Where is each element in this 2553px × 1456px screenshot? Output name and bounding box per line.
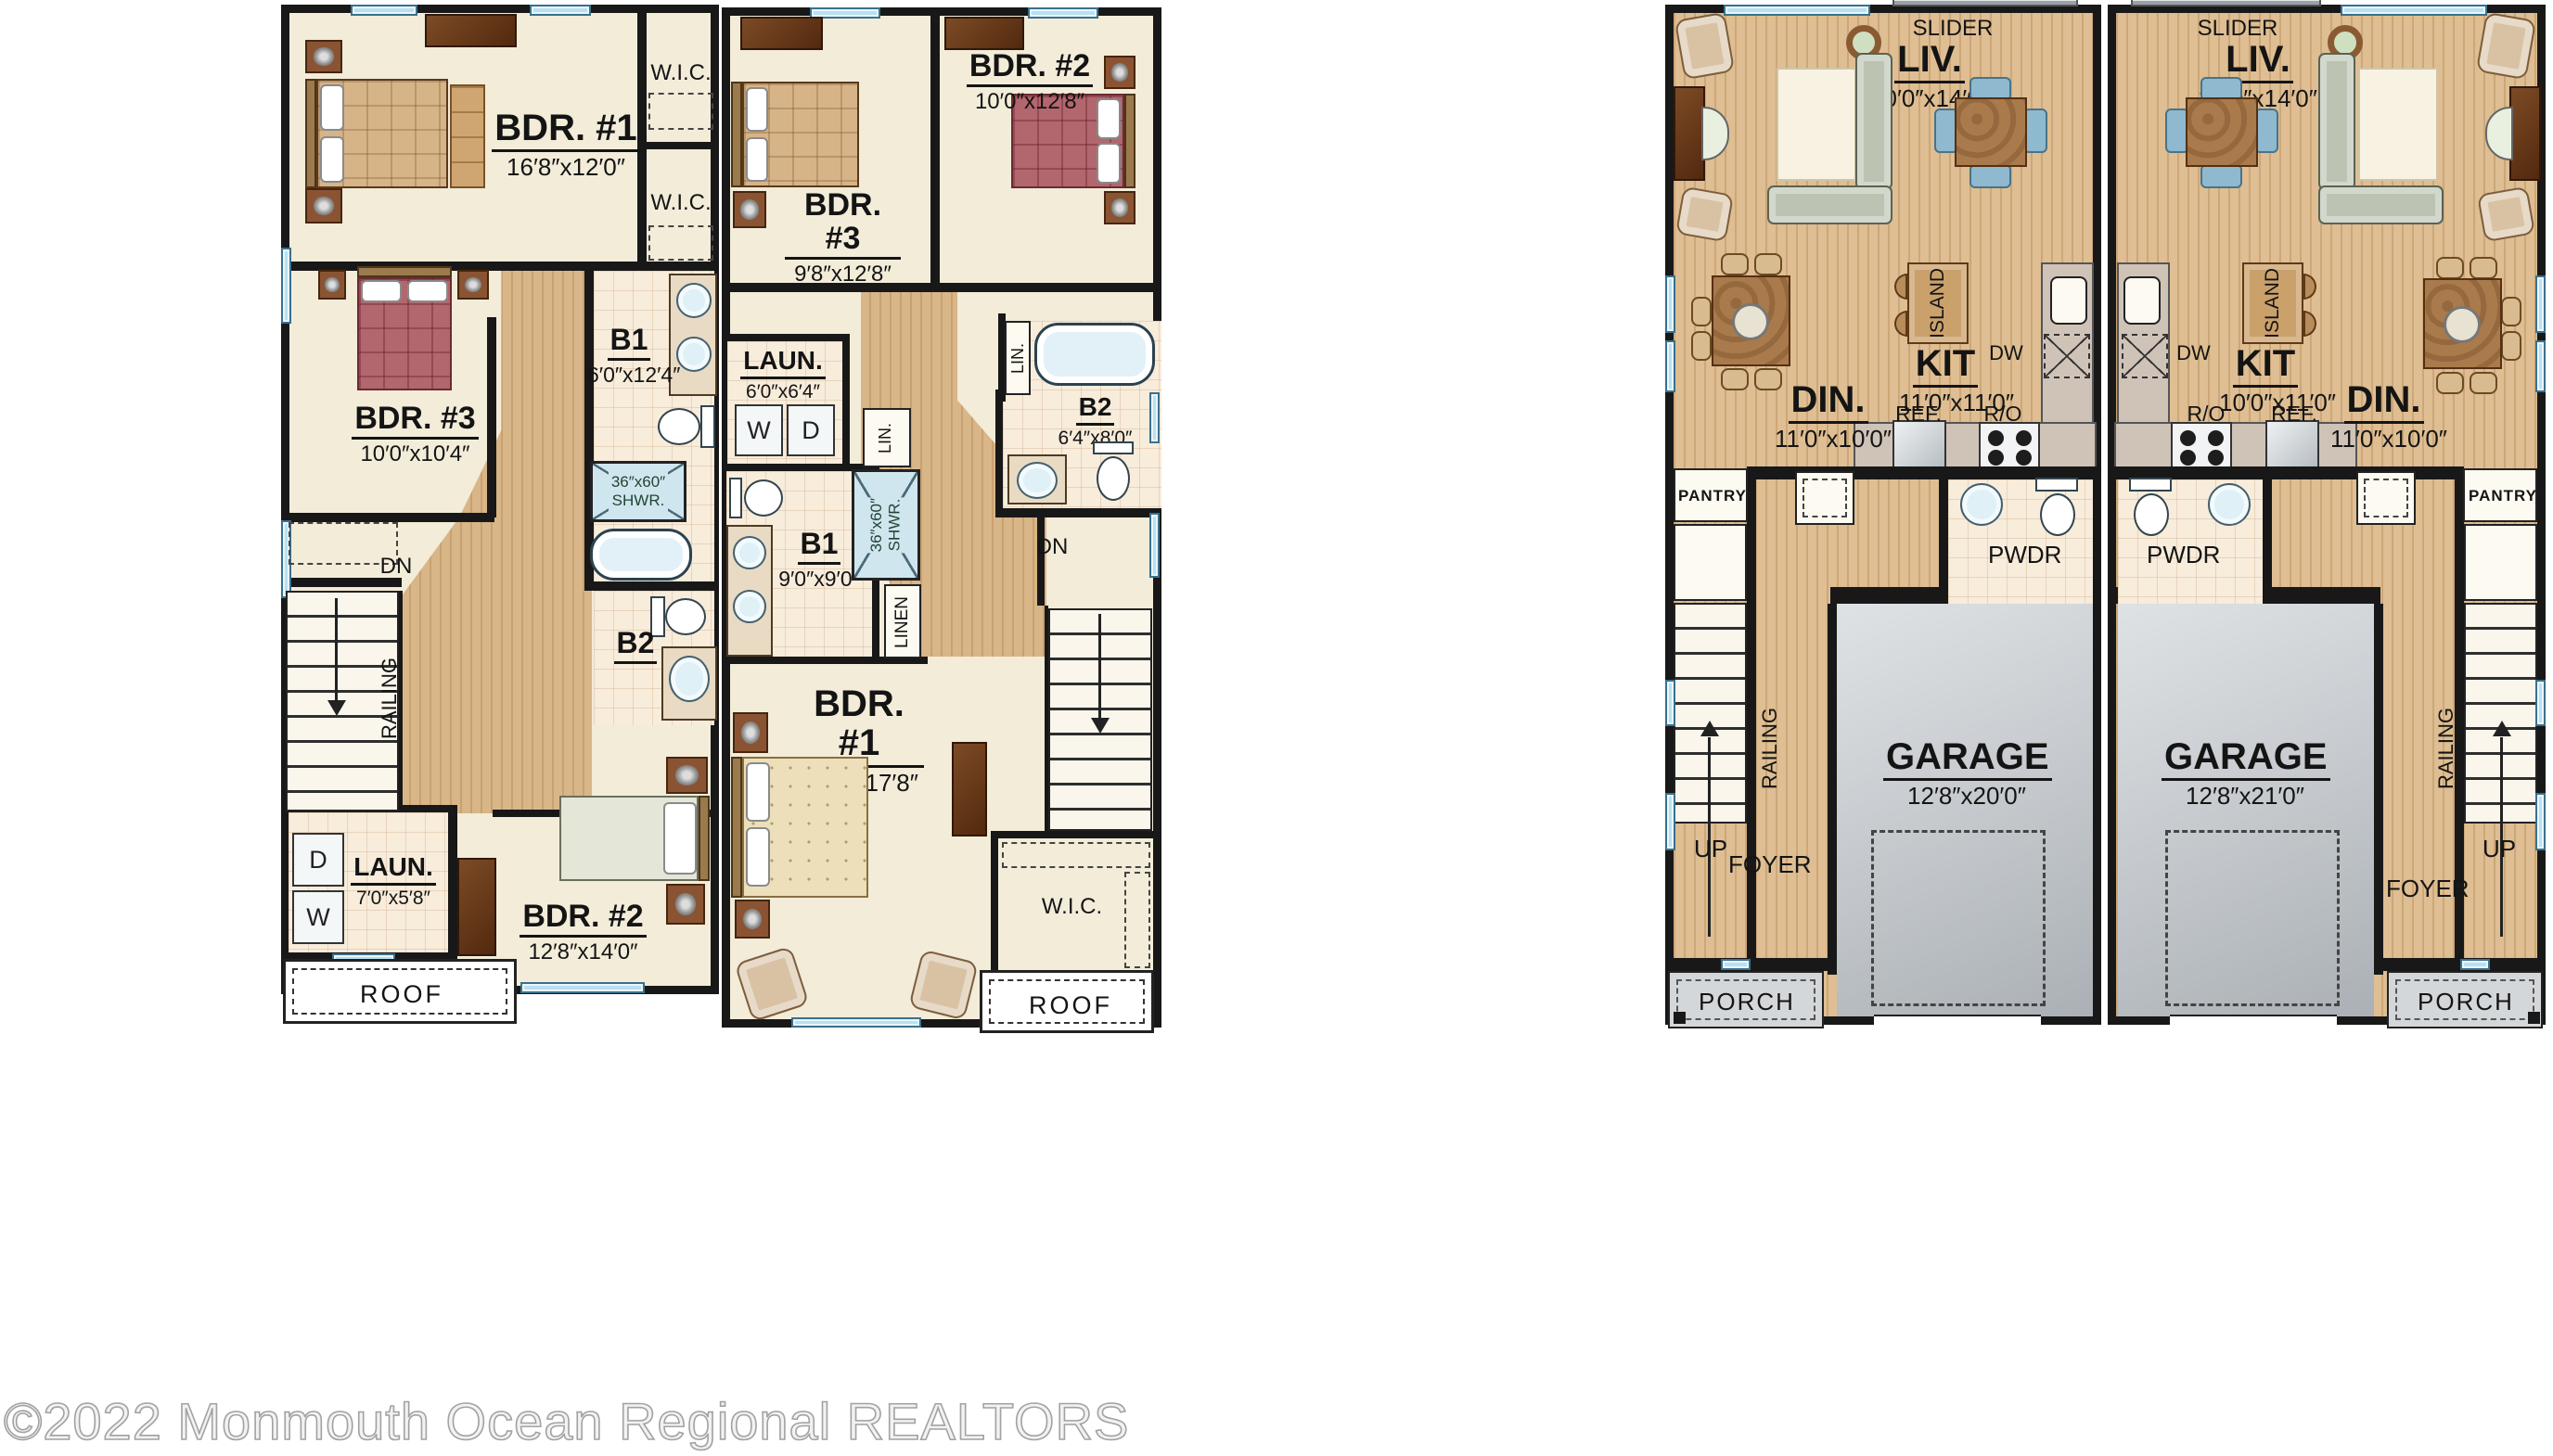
dining-chair	[1721, 368, 1749, 390]
coat-closet	[1795, 471, 1854, 525]
foyer-label: FOYER	[2386, 875, 2455, 903]
window	[1665, 680, 1675, 726]
tv-console	[740, 17, 823, 50]
kitchen-table	[1955, 97, 2027, 167]
rug	[2358, 68, 2438, 181]
dryer: D	[292, 833, 344, 887]
dining-chair	[2470, 257, 2497, 279]
pillow	[1097, 98, 1121, 139]
closet-shelf	[1002, 842, 1150, 868]
room-label-laun: LAUN. 7′0″x5′8″	[339, 853, 448, 909]
wic-label: W.I.C.	[646, 60, 716, 86]
closet-shelf	[648, 225, 713, 261]
porch: PORCH	[1668, 971, 1824, 1028]
stool	[2303, 274, 2316, 300]
closet-shelf	[1124, 872, 1150, 968]
dining-chair	[2200, 164, 2242, 188]
lin-label: LIN.	[876, 414, 895, 462]
garage-door-opening	[1874, 1015, 2041, 1025]
toilet	[1091, 441, 1135, 504]
toilet	[729, 476, 785, 520]
window	[2535, 680, 2546, 726]
washer: W	[735, 404, 783, 456]
sofa	[1767, 185, 1892, 224]
tv-console	[1674, 86, 1705, 181]
pillow	[746, 137, 768, 182]
garage-door-outline	[1871, 830, 2046, 1006]
wall	[722, 334, 850, 341]
dining-chair	[1721, 253, 1749, 275]
window	[1665, 340, 1675, 392]
sofa	[2318, 185, 2444, 224]
stair-arrowhead	[1091, 718, 1110, 734]
garage-door-opening	[2170, 1015, 2337, 1025]
kitchen-table	[2186, 97, 2258, 167]
sink	[669, 656, 710, 702]
nightstand	[305, 40, 342, 73]
dining-chair	[1754, 368, 1782, 390]
wall	[930, 7, 940, 283]
closet-shelf	[648, 93, 713, 130]
wall	[1747, 466, 1756, 972]
watermark: ©2022 Monmouth Ocean Regional REALTORS	[4, 1391, 1129, 1451]
pillow	[361, 280, 402, 302]
stair-arrowhead	[327, 700, 346, 716]
wall	[991, 838, 998, 974]
sink	[733, 536, 766, 569]
wall	[281, 262, 719, 271]
stool	[1894, 311, 1907, 337]
wall	[584, 581, 719, 591]
porch-label: PORCH	[2415, 988, 2517, 1016]
armchair	[734, 946, 809, 1023]
armchair	[1675, 186, 1734, 243]
wall	[1828, 604, 1837, 975]
wall	[722, 464, 872, 471]
sink	[676, 283, 712, 318]
wall	[281, 513, 494, 522]
dining-chair	[1691, 331, 1712, 361]
window	[1028, 7, 1098, 19]
window	[520, 982, 645, 993]
stair-arrowhead	[1700, 721, 1719, 736]
room-label-bdr3: BDR. #3 9′8″x12′8″	[785, 188, 901, 287]
foyer-label: FOYER	[1728, 850, 1797, 879]
dining-chair	[2436, 257, 2464, 279]
porch-post	[1674, 1012, 1686, 1024]
garage-door-outline	[2165, 830, 2340, 1006]
railing-label: RAILING	[2434, 706, 2458, 791]
window	[2535, 793, 2546, 850]
nightstand	[666, 757, 708, 794]
room-label-garage: GARAGE 12′8″x20′0″	[1883, 737, 2050, 810]
refrigerator	[1892, 420, 1946, 470]
window	[2341, 5, 2487, 16]
nightstand	[733, 712, 768, 753]
tv	[2485, 107, 2513, 160]
rug	[1777, 68, 1856, 181]
bed-headboard	[1124, 94, 1135, 188]
slider-label: SLIDER	[2196, 16, 2279, 42]
tv-console	[425, 14, 517, 47]
unit-a-second-floor: BDR. #1 16′8″x12′0″ W.I.C. W.I.C. BDR. #…	[281, 5, 719, 994]
roof-label: ROOF	[1010, 991, 1131, 1020]
bed-headboard	[305, 79, 316, 188]
window	[530, 5, 591, 16]
dresser	[450, 84, 485, 188]
refrigerator	[2265, 420, 2319, 470]
nightstand	[733, 191, 766, 228]
porch: PORCH	[2387, 971, 2543, 1028]
dining-chair	[2501, 331, 2521, 361]
wall	[995, 390, 1003, 510]
room-label-din: DIN. 11′0″x10′0″	[2330, 380, 2437, 453]
pwdr-label: PWDR	[1988, 541, 2059, 569]
room-label-din: DIN. 11′0″x10′0″	[1775, 380, 1881, 453]
kitchen-sink	[2123, 276, 2161, 325]
wall	[448, 805, 457, 964]
nightstand	[1104, 56, 1135, 89]
wic-label: W.I.C.	[646, 190, 716, 216]
toilet	[658, 403, 715, 452]
wic-label: W.I.C.	[1033, 894, 1111, 920]
wall	[842, 334, 850, 471]
pillow	[320, 136, 344, 183]
dining-chair	[2436, 372, 2464, 394]
nightstand	[318, 270, 346, 300]
sofa	[2318, 53, 2355, 190]
window	[2460, 959, 2490, 970]
roof-overhang: ROOF	[980, 970, 1154, 1033]
room-label-bdr2: BDR. #2 10′0″x12′8″	[965, 49, 1095, 113]
stair-closet	[1674, 524, 1747, 601]
wall	[995, 508, 1161, 517]
washer: W	[292, 890, 344, 944]
up-label: UP	[1688, 835, 1733, 863]
room-label-bdr1: BDR. #1 16′8″x12′0″	[487, 109, 645, 181]
dishwasher	[2122, 334, 2168, 378]
slider-door	[2131, 0, 2321, 6]
roof-label: ROOF	[341, 980, 462, 1009]
window	[1724, 5, 1870, 16]
pillow	[407, 280, 448, 302]
tv	[1701, 107, 1729, 160]
window	[281, 248, 291, 324]
porch-post	[2528, 1012, 2540, 1024]
island-label: ISLAND	[2262, 268, 2284, 338]
window	[2535, 275, 2546, 333]
window	[791, 1017, 921, 1028]
dining-chair	[1691, 297, 1712, 326]
wall	[584, 271, 594, 586]
kitchen-island: ISLAND	[1907, 262, 1969, 344]
nightstand	[1104, 191, 1135, 224]
armchair	[908, 949, 979, 1020]
kitchen-sink	[2050, 276, 2087, 325]
stair-arrow	[335, 598, 338, 700]
dining-chair	[1969, 164, 2011, 188]
sink	[1960, 483, 2003, 526]
ro-label: R/O	[1981, 402, 2025, 427]
up-label: UP	[2477, 835, 2521, 863]
range	[1979, 422, 2040, 470]
pillow	[746, 87, 768, 132]
room-label-laun: LAUN. 6′0″x6′4″	[729, 347, 837, 402]
centerpiece-bowl	[2444, 306, 2481, 343]
railing-label: RAILING	[1758, 706, 1782, 791]
sofa	[1855, 53, 1892, 190]
unit-c-first-floor: SLIDER LIV. 20′0″x14′0″ ISLAND DW KIT 11…	[1665, 5, 2101, 1025]
wall	[1037, 517, 1045, 606]
room-label-b2: B2 6′4″x8′0″	[1037, 393, 1153, 449]
window	[1721, 959, 1751, 970]
pillow	[320, 84, 344, 131]
roof-overhang: ROOF	[283, 959, 517, 1024]
dining-chair	[2470, 372, 2497, 394]
shower: 36″x60″SHWR.	[590, 461, 686, 522]
nightstand	[305, 188, 342, 224]
dresser	[952, 742, 987, 837]
nightstand	[457, 270, 489, 300]
toilet	[2034, 478, 2081, 539]
lin-label: LIN.	[1008, 328, 1028, 388]
window	[2535, 340, 2546, 392]
pillow	[746, 762, 770, 822]
room-label-garage: GARAGE 12′8″x21′0″	[2162, 737, 2328, 810]
bed-headboard	[731, 82, 742, 187]
dn-label: DN	[1030, 534, 1074, 560]
wall	[991, 831, 1161, 838]
bed-headboard	[731, 757, 742, 898]
dining-chair	[1754, 253, 1782, 275]
ref-label: REF.	[2270, 402, 2318, 427]
armchair	[2476, 12, 2536, 81]
slider-door	[1892, 0, 2078, 6]
toilet	[2128, 478, 2175, 539]
coat-closet	[2356, 471, 2416, 525]
railing-label: RAILING	[378, 654, 402, 743]
sink	[733, 590, 766, 623]
stair-closet	[2464, 524, 2537, 601]
slider-label: SLIDER	[1911, 16, 1995, 42]
wall	[2374, 604, 2383, 975]
stool	[1894, 274, 1907, 300]
pillow	[663, 802, 697, 875]
armchair	[1674, 12, 1735, 81]
porch-label: PORCH	[1696, 988, 1798, 1016]
window	[1665, 793, 1675, 850]
pwdr-label: PWDR	[2147, 541, 2217, 569]
range	[2171, 422, 2232, 470]
bed-headboard	[699, 796, 710, 881]
dining-chair	[2501, 297, 2521, 326]
shower: 36″x60″SHWR.	[852, 469, 920, 581]
nightstand	[735, 900, 770, 939]
stair-arrow	[1098, 614, 1101, 718]
ro-label: R/O	[2184, 402, 2228, 427]
floorplan-sheet: { "watermark": "©2022 Monmouth Ocean Reg…	[0, 0, 2553, 1456]
pantry-label: PANTRY	[2469, 487, 2532, 505]
pantry-label: PANTRY	[1678, 487, 1741, 505]
linen-label: LINEN	[892, 592, 913, 653]
tv-console	[944, 17, 1024, 50]
dresser	[457, 858, 496, 956]
bathtub	[590, 529, 692, 581]
island-label: ISLAND	[1927, 268, 1949, 338]
centerpiece-bowl	[1732, 303, 1769, 340]
window	[1665, 275, 1675, 333]
armchair	[2477, 186, 2535, 243]
window	[351, 5, 417, 16]
dryer: D	[787, 404, 835, 456]
sink	[1017, 462, 1058, 499]
pillow	[746, 827, 770, 887]
sink	[2208, 483, 2251, 526]
unit-d-first-floor: SLIDER LIV. 20′0″x14′0″ ISLAND DW KIT 10…	[2108, 5, 2546, 1025]
wall	[637, 142, 719, 149]
stool	[2303, 311, 2316, 337]
stair-arrowhead	[2493, 721, 2511, 736]
room-label-bdr3: BDR. #3 10′0″x10′4″	[339, 402, 492, 466]
dn-label: DN	[374, 554, 418, 580]
pillow	[1097, 143, 1121, 184]
kitchen-island: ISLAND	[2242, 262, 2303, 344]
unit-b-second-floor: BDR. #3 9′8″x12′8″ BDR. #2 10′0″x12′8″ L…	[722, 7, 1161, 1028]
dishwasher	[2044, 334, 2090, 378]
room-label-b2: B2	[608, 628, 663, 664]
dw-label: DW	[2173, 341, 2214, 365]
room-label-bdr2: BDR. #2 12′8″x14′0″	[493, 900, 674, 964]
tv-console	[2509, 86, 2541, 181]
bed-headboard	[357, 266, 452, 277]
room-label-b1: B1 6′0″x12′4″	[587, 325, 671, 386]
window	[1149, 513, 1160, 578]
bathtub	[1034, 323, 1155, 386]
sink	[676, 337, 712, 372]
ref-label: REF.	[1894, 402, 1943, 427]
